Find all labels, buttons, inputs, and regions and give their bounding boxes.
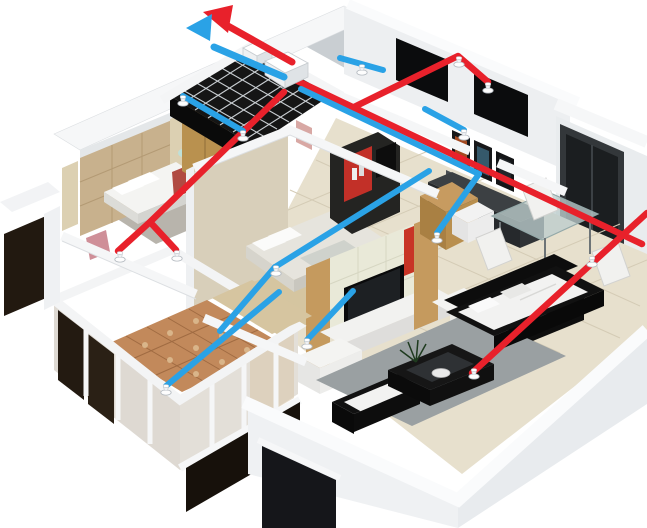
deco-panel-left: [62, 161, 78, 231]
apartment-structure: [0, 4, 647, 528]
exterior-left-fragments: [0, 182, 60, 316]
red-accent-panel: [404, 226, 414, 276]
airflow-arrow-head-blue: [186, 14, 212, 41]
apartment-ventilation-rendering: [0, 0, 647, 528]
dark-window-left: [4, 216, 46, 316]
scene-canvas: [0, 0, 647, 528]
